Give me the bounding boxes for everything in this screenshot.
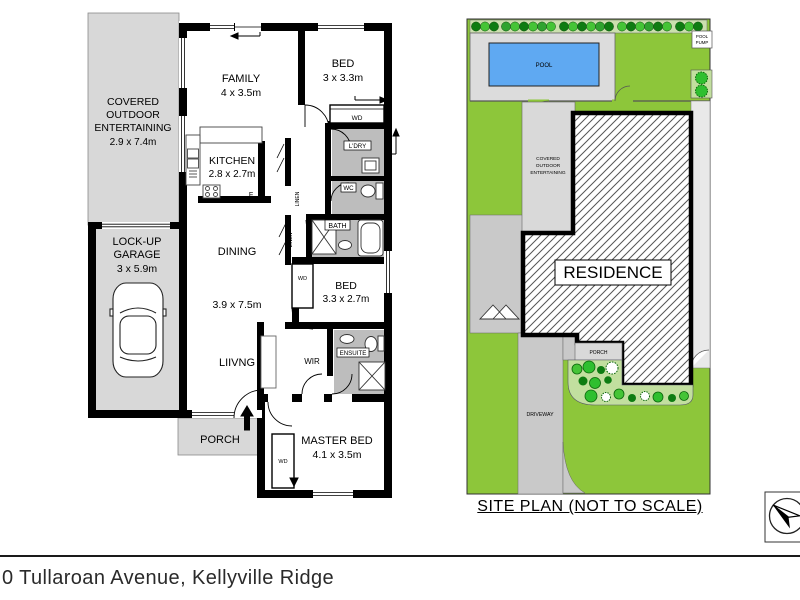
- family-label: FAMILY: [222, 73, 261, 85]
- living-label: LIIVNG: [219, 357, 255, 369]
- bed2-label: BED: [335, 280, 357, 292]
- wir-label: WIR: [304, 357, 320, 366]
- side-path: [691, 101, 710, 368]
- pool-label: POOL: [536, 63, 553, 69]
- family-dim: 4 x 3.5m: [221, 87, 262, 99]
- compass-icon: [763, 490, 800, 544]
- pool-pump-label-2: PUMP: [696, 40, 709, 45]
- covered-outdoor-label-1: COVERED: [107, 96, 159, 108]
- bath-label: BATH: [328, 223, 346, 230]
- floor-plan: COVERED OUTDOOR ENTERTAINING 2.9 x 7.4m …: [80, 8, 400, 508]
- covered-outdoor-label-2: OUTDOOR: [106, 109, 160, 121]
- linen-top-label: LINEN: [295, 191, 301, 206]
- wd-bed1-label: WD: [352, 115, 363, 122]
- linen-mid-label: LINEN: [288, 232, 294, 247]
- bed2-dim: 3.3 x 2.7m: [323, 294, 370, 305]
- bed1-dim: 3 x 3.3m: [323, 72, 364, 84]
- floorplan-page: COVERED OUTDOOR ENTERTAINING 2.9 x 7.4m …: [0, 0, 800, 600]
- bed1-label: BED: [332, 58, 355, 70]
- master-bed-label: MASTER BED: [301, 435, 373, 447]
- car-icon: [110, 283, 166, 377]
- site-plan: POOL POOL PUMP DRIVEWAY COVERED OUTDOOR …: [460, 12, 760, 522]
- dining-label: DINING: [218, 246, 257, 258]
- kitchen-label: KITCHEN: [209, 155, 255, 167]
- ensuite-label: ENSUITE: [340, 350, 367, 357]
- pool-pump-label-1: POOL: [696, 34, 709, 39]
- address-text: 0 Tullaroan Avenue, Kellyville Ridge: [2, 567, 334, 590]
- site-covered-label-1: COVERED: [536, 156, 560, 162]
- wc-label: WC: [343, 185, 354, 192]
- kitchen-dim: 2.8 x 2.7m: [209, 169, 256, 180]
- site-plan-caption: SITE PLAN (NOT TO SCALE): [460, 498, 720, 516]
- wd-bed2-label: WD: [298, 276, 307, 282]
- driveway-label: DRIVEWAY: [526, 412, 554, 418]
- garage-label-2: GARAGE: [113, 249, 160, 261]
- residence-label: RESIDENCE: [563, 263, 662, 282]
- site-covered-label-2: OUTDOOR: [536, 163, 561, 169]
- footer-divider: [0, 555, 800, 557]
- garage-label-1: LOCK-UP: [113, 236, 162, 248]
- covered-outdoor-label-3: ENTERTAINING: [94, 122, 171, 134]
- laundry-label: L'DRY: [349, 143, 367, 150]
- open-plan-dim: 3.9 x 7.5m: [212, 299, 261, 311]
- pantry-label: PTRY: [287, 160, 293, 175]
- wd-master-label: WD: [278, 459, 287, 465]
- master-bed-dim: 4.1 x 3.5m: [312, 449, 361, 461]
- covered-outdoor-dim: 2.9 x 7.4m: [110, 137, 157, 148]
- site-porch-label: PORCH: [589, 350, 607, 356]
- porch-label: PORCH: [200, 434, 240, 446]
- fridge-label: F: [249, 192, 253, 199]
- garage-dim: 3 x 5.9m: [117, 263, 158, 275]
- site-covered-label-3: ENTERTAINING: [530, 170, 566, 176]
